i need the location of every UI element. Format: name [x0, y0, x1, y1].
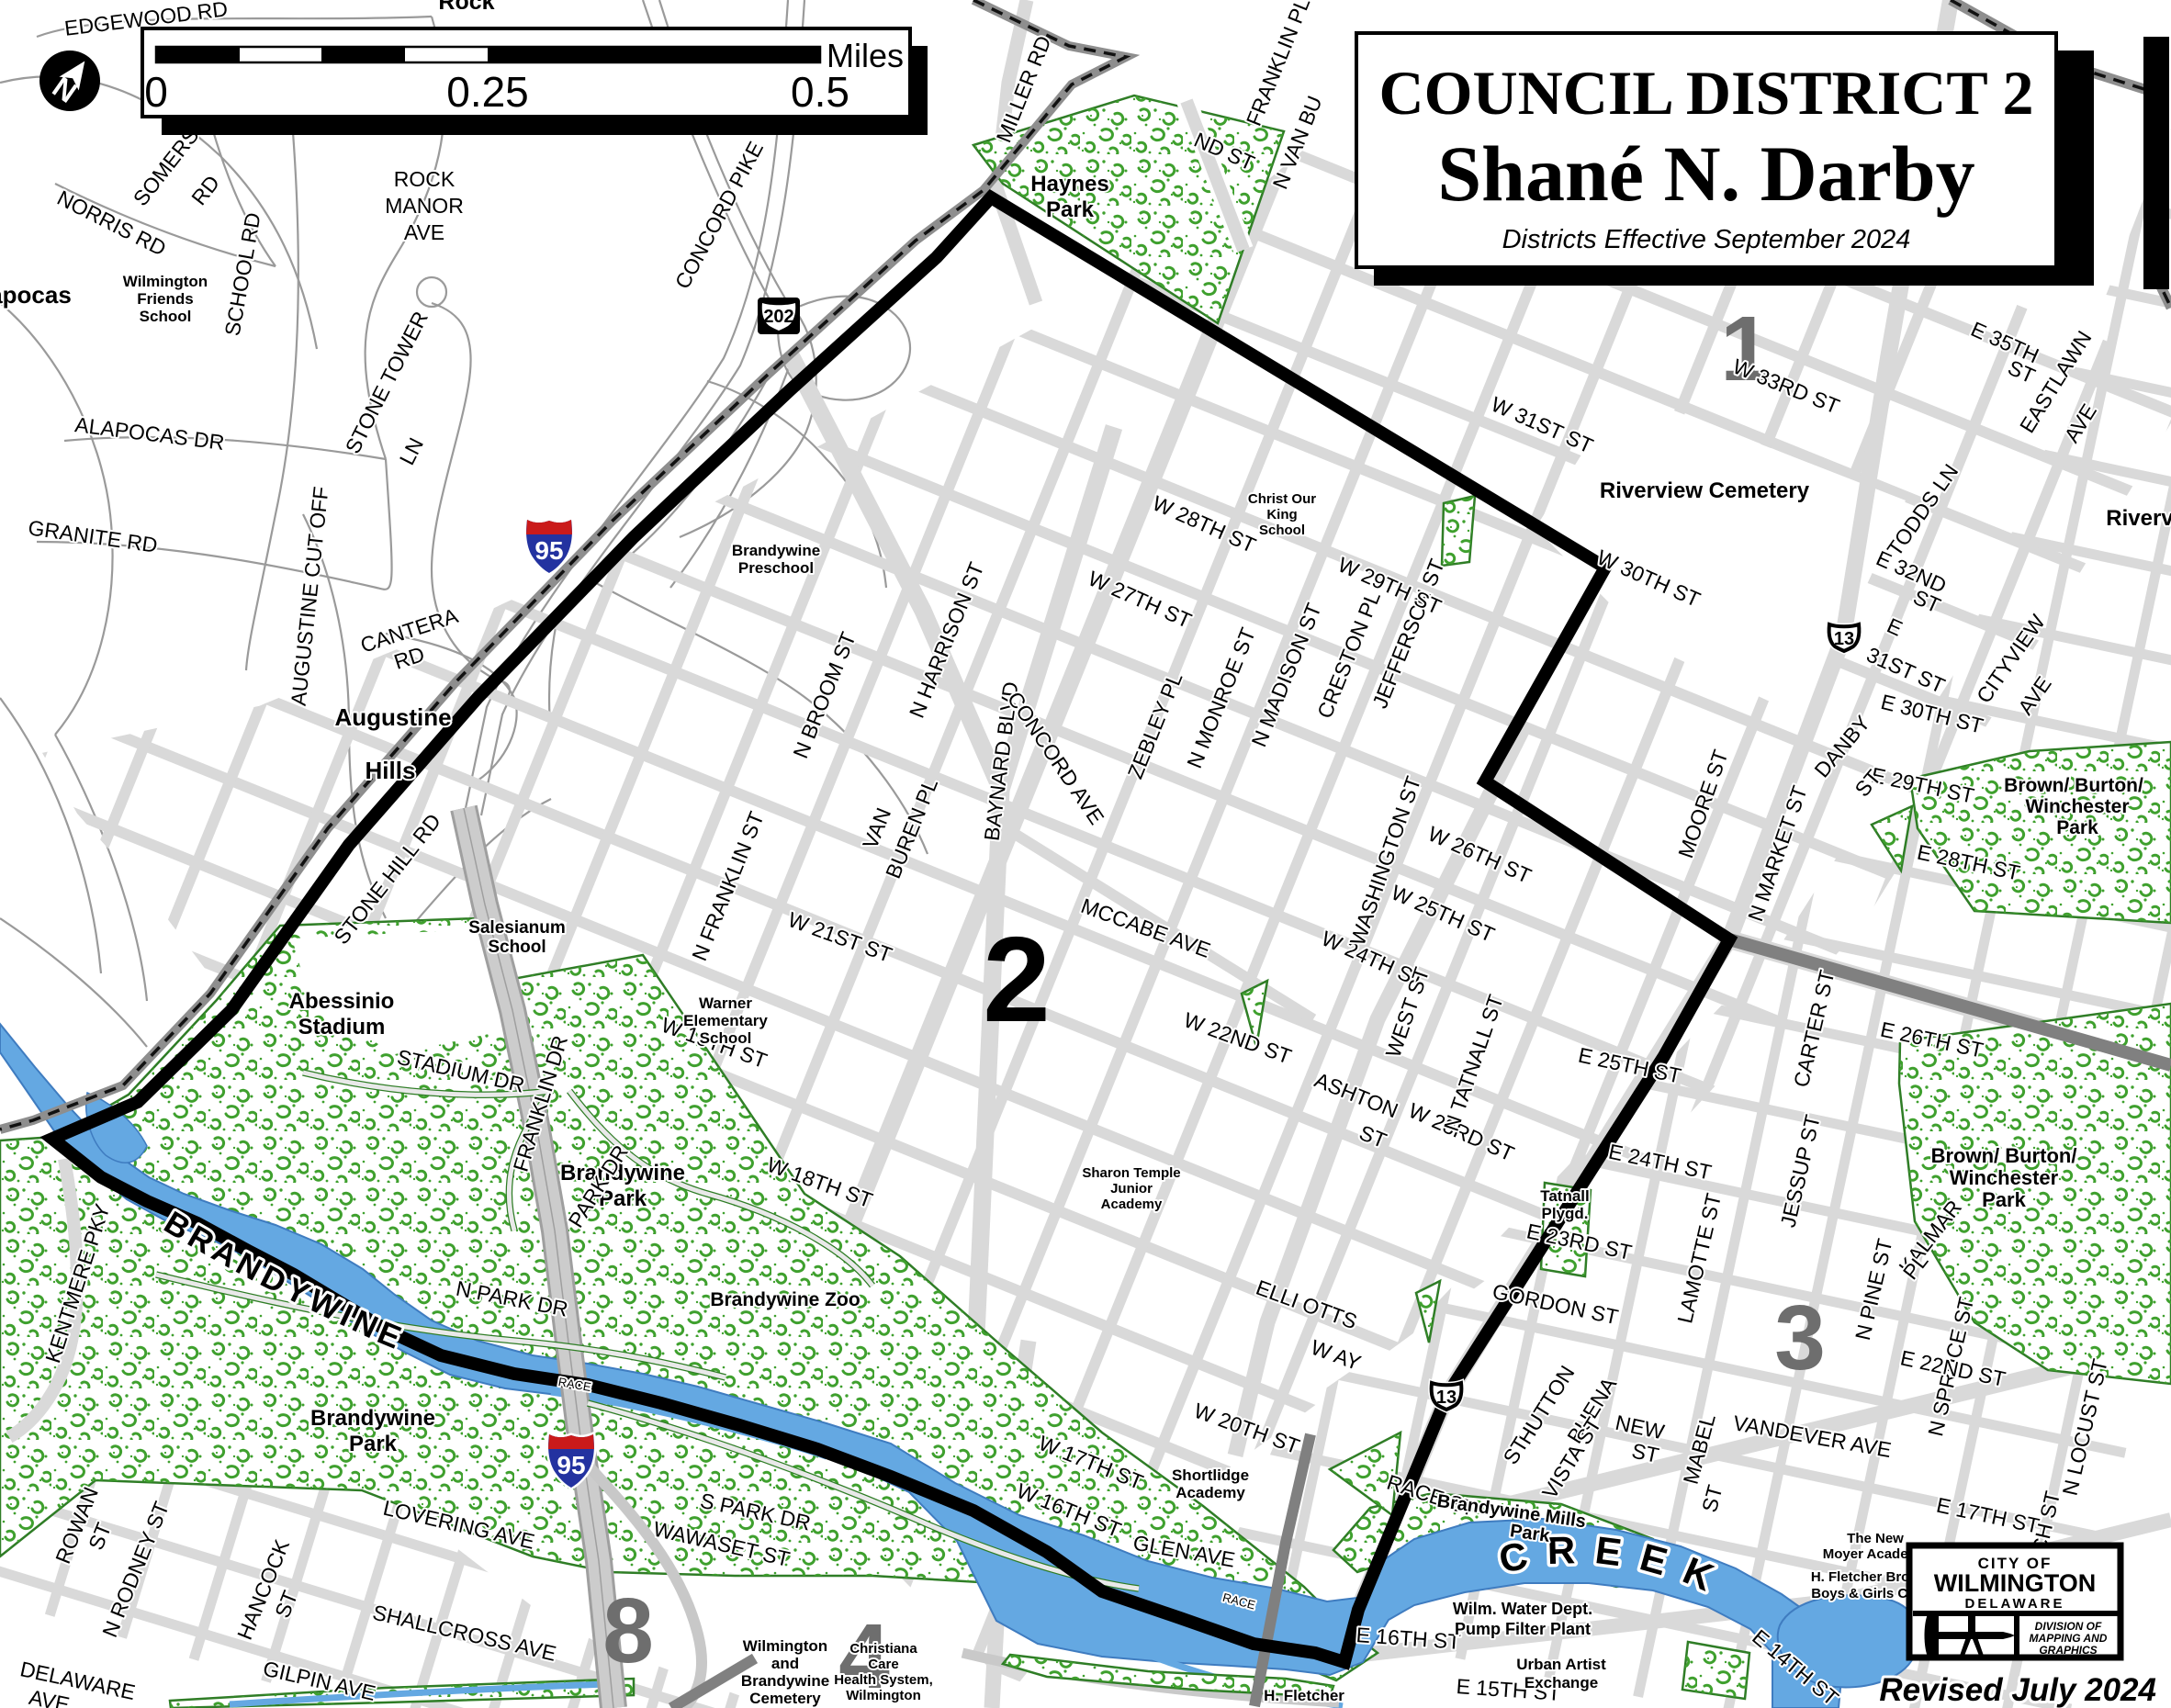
svg-text:Sharon Temple: Sharon Temple: [1082, 1165, 1180, 1181]
svg-text:GRAPHICS: GRAPHICS: [2039, 1644, 2097, 1657]
svg-text:Riverview Cemetery: Riverview Cemetery: [1600, 478, 1810, 503]
svg-text:Brandywine: Brandywine: [741, 1672, 829, 1690]
svg-text:Friends: Friends: [137, 290, 193, 308]
svg-text:Elementary: Elementary: [683, 1012, 768, 1029]
svg-text:Plygd.: Plygd.: [1541, 1205, 1588, 1222]
svg-text:Rivervie: Rivervie: [2106, 506, 2171, 531]
svg-text:COUNCIL DISTRICT 2: COUNCIL DISTRICT 2: [1379, 58, 2034, 128]
svg-text:Brown/ Burton/: Brown/ Burton/: [1931, 1144, 2077, 1167]
svg-text:Winchester: Winchester: [1950, 1166, 2059, 1189]
svg-text:Academy: Academy: [1101, 1197, 1163, 1212]
svg-text:Shané N. Darby: Shané N. Darby: [1437, 129, 1974, 218]
svg-text:13: 13: [1834, 629, 1854, 649]
svg-text:Christiana: Christiana: [849, 1641, 917, 1657]
svg-text:202: 202: [763, 307, 793, 327]
svg-text:Wilm. Water Dept.: Wilm. Water Dept.: [1453, 1600, 1592, 1618]
svg-text:The New: The New: [1847, 1531, 1904, 1546]
svg-text:Park: Park: [1046, 197, 1095, 222]
svg-text:Care: Care: [868, 1657, 898, 1672]
svg-text:Augustine: Augustine: [334, 703, 451, 731]
svg-text:13: 13: [1436, 1388, 1457, 1408]
svg-text:0.5: 0.5: [791, 68, 849, 116]
svg-text:Warner: Warner: [699, 994, 752, 1012]
svg-text:Brandywine Zoo: Brandywine Zoo: [710, 1289, 860, 1310]
svg-text:Cemetery: Cemetery: [749, 1690, 821, 1707]
svg-text:WILMINGTON: WILMINGTON: [1934, 1569, 2096, 1597]
svg-text:Wilmington: Wilmington: [123, 273, 208, 290]
svg-text:King: King: [1266, 507, 1297, 523]
svg-text:Salesianum: Salesianum: [468, 918, 566, 938]
svg-text:Urban Artist: Urban Artist: [1516, 1656, 1606, 1673]
svg-text:0.25: 0.25: [446, 68, 529, 116]
svg-text:Park: Park: [349, 1432, 398, 1456]
svg-text:Wilmington: Wilmington: [743, 1637, 827, 1655]
svg-text:8: 8: [602, 1579, 654, 1682]
svg-text:and: and: [771, 1655, 799, 1672]
svg-text:2: 2: [983, 912, 1050, 1047]
svg-text:Shortlidge: Shortlidge: [1172, 1466, 1249, 1484]
svg-text:Abessinio: Abessinio: [289, 989, 395, 1014]
svg-text:Hills: Hills: [366, 757, 416, 784]
svg-text:School: School: [140, 308, 192, 325]
svg-text:DIVISION OF: DIVISION OF: [2035, 1620, 2102, 1633]
svg-text:Pump Filter Plant: Pump Filter Plant: [1455, 1620, 1591, 1638]
svg-text:MAPPING AND: MAPPING AND: [2030, 1632, 2108, 1645]
svg-text:Brown/ Burton/: Brown/ Burton/: [2004, 775, 2143, 796]
svg-text:ROCK: ROCK: [394, 167, 456, 191]
svg-text:DELAWARE: DELAWARE: [1964, 1596, 2064, 1612]
svg-text:School: School: [700, 1029, 752, 1047]
svg-text:Winchester: Winchester: [2025, 796, 2129, 817]
svg-text:Exchange: Exchange: [1524, 1674, 1598, 1691]
svg-text:Brandywine: Brandywine: [310, 1406, 435, 1431]
svg-text:Park: Park: [2056, 817, 2098, 838]
svg-text:AVE: AVE: [404, 220, 444, 244]
svg-text:Preschool: Preschool: [738, 559, 814, 577]
svg-text:School: School: [1259, 523, 1305, 538]
svg-text:School: School: [488, 938, 546, 957]
svg-text:Tatnall: Tatnall: [1540, 1187, 1590, 1205]
svg-text:95: 95: [534, 536, 563, 565]
svg-text:Rock: Rock: [438, 0, 494, 15]
svg-text:Stadium: Stadium: [298, 1015, 386, 1039]
svg-text:Junior: Junior: [1110, 1181, 1153, 1197]
svg-text:Health System,: Health System,: [834, 1672, 933, 1688]
svg-text:Wilmington: Wilmington: [846, 1688, 921, 1703]
svg-text:95: 95: [557, 1451, 585, 1479]
svg-text:Christ Our: Christ Our: [1248, 491, 1316, 507]
svg-text:Haynes: Haynes: [1030, 172, 1108, 197]
svg-text:3: 3: [1774, 1287, 1826, 1389]
svg-text:Revised July 2024: Revised July 2024: [1879, 1672, 2156, 1708]
svg-text:Academy: Academy: [1175, 1484, 1245, 1501]
svg-text:MANOR: MANOR: [385, 194, 464, 218]
svg-text:0: 0: [144, 68, 168, 116]
svg-text:Districts Effective September: Districts Effective September 2024: [1502, 225, 1911, 254]
svg-text:Park: Park: [1982, 1188, 2026, 1211]
svg-text:H. Fletcher: H. Fletcher: [1264, 1687, 1344, 1704]
svg-text:apocas: apocas: [0, 281, 72, 309]
svg-text:Brandywine: Brandywine: [732, 542, 820, 559]
